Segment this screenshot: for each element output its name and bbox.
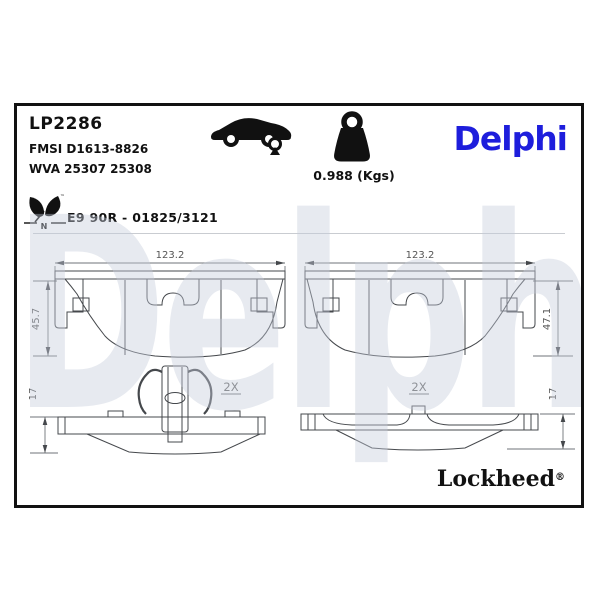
quantity-left: 2X [223, 380, 238, 394]
registered-symbol: ® [555, 472, 565, 483]
header-divider [33, 233, 565, 234]
delphi-logo: Delphi [453, 119, 567, 158]
quantity-right: 2X [411, 380, 426, 394]
edge-shape-right [301, 406, 538, 450]
car-rear-axle-icon [207, 109, 295, 155]
dim-thickness-left: 17 [28, 388, 39, 401]
brake-pad-datasheet: Delphi LP2286 FMSI D1613-8826 WVA 25307 … [0, 0, 600, 600]
pad-shape-right [305, 271, 535, 357]
dim-width-left: 123.2 [156, 250, 185, 261]
approval-code: E9 90R - 01825/3121 [67, 210, 218, 225]
part-number: LP2286 [29, 114, 103, 134]
dim-width-right: 123.2 [406, 250, 435, 261]
pad-shape-left [55, 271, 285, 357]
wva-reference: WVA 25307 25308 [29, 162, 152, 176]
leaf-eco-icon: ™ N [23, 190, 69, 230]
spring-arm-right [188, 370, 211, 414]
axle-letter: N [41, 222, 48, 230]
dim-height-right: 47.1 [542, 308, 553, 330]
fmsi-reference: FMSI D1613-8826 [29, 142, 148, 156]
pad-edge-view-right: 2X 17 [297, 358, 581, 476]
lockheed-logo: Lockheed® [437, 466, 565, 492]
pad-edge-view-left: 17 2X [25, 358, 305, 476]
weight-icon [323, 111, 381, 167]
datasheet-frame: Delphi LP2286 FMSI D1613-8826 WVA 25307 … [14, 103, 584, 508]
dim-thickness-right: 17 [548, 388, 559, 401]
spring-arm-left [139, 370, 162, 414]
weight-value: 0.988 (Kgs) [304, 168, 404, 183]
dim-height-left: 45.7 [31, 308, 42, 330]
lockheed-text: Lockheed [437, 466, 555, 492]
trademark-symbol: ™ [60, 194, 65, 200]
